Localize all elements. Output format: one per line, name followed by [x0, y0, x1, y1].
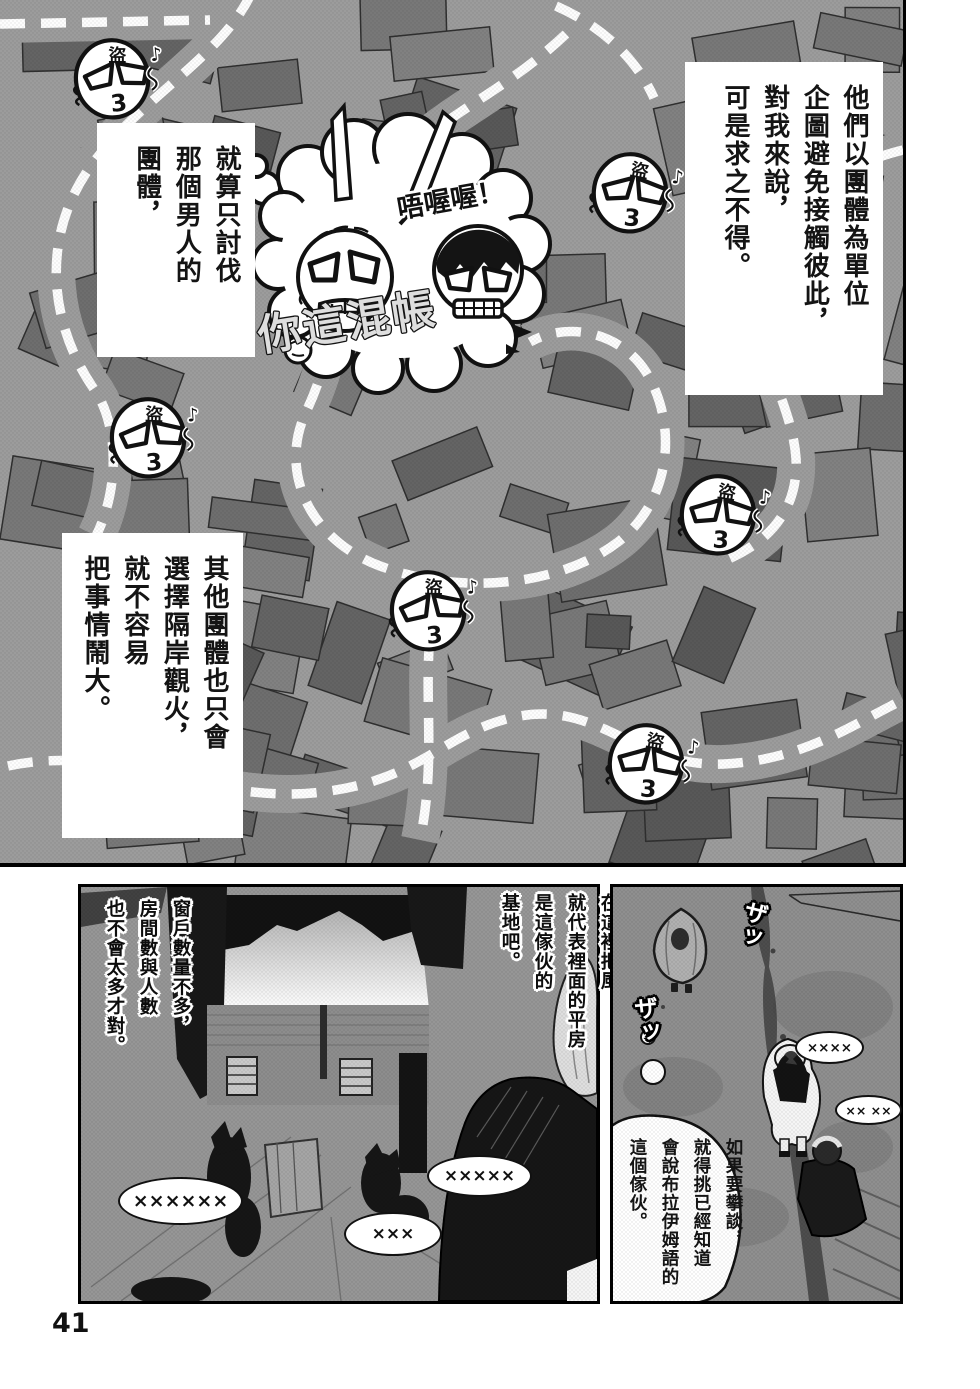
alley-caption-right: 在這裡把風， 就代表裡面的平房 是這傢伙的 基地吧。 — [489, 893, 621, 1049]
speech-bubble: ×× ×× — [835, 1095, 902, 1125]
bubble-text: ×××× — [807, 1040, 852, 1056]
caption-line: 對我來說， — [759, 84, 790, 373]
caption-line: 窗戶數量不多， — [167, 899, 193, 1055]
caption-line: 他們以團體為單位 — [838, 84, 869, 373]
caption-line: 就算只討伐 — [210, 145, 241, 335]
speech-bubble: ×××××× — [118, 1177, 243, 1225]
bubble-text: ×× ×× — [845, 1103, 891, 1118]
caption-line: 企圖避免接觸彼此， — [799, 84, 830, 373]
caption-box-left: 就算只討伐 那個男人的 團體， — [97, 123, 255, 357]
caption-line: 也不會太多才對。 — [101, 899, 127, 1055]
speech-bubble: ××××× — [427, 1155, 532, 1197]
manga-page: 盜 3 ♪ 盜 3 ♪ — [0, 0, 980, 1389]
caption-line: 如果要攀談， — [721, 1138, 746, 1286]
speech-bubble: ×××× — [795, 1031, 864, 1064]
caption-line: 其他團體也只會 — [198, 555, 229, 816]
page-number: 41 — [52, 1308, 90, 1339]
caption-line: 就不容易 — [119, 555, 150, 816]
caption-box-top-right: 他們以團體為單位 企圖避免接觸彼此， 對我來說， 可是求之不得。 — [685, 62, 883, 395]
caption-line: 就代表裡面的平房 — [562, 893, 588, 1049]
thought-text: 如果要攀談， 就得挑已經知道 會說布拉伊姆語的 這個傢伙。 — [618, 1138, 746, 1286]
caption-line: 房間數與人數 — [134, 899, 160, 1055]
whistle-mouth: 3 — [425, 620, 444, 649]
bubble-text: ××××× — [444, 1166, 515, 1186]
music-note-icon: ♪ — [759, 488, 772, 510]
chibi-darkhair — [434, 226, 522, 317]
whistle-mouth: 3 — [623, 203, 642, 232]
caption-line: 就得挑已經知道 — [689, 1138, 714, 1286]
caption-line: 是這傢伙的 — [529, 893, 555, 1049]
music-note-icon: ♪ — [149, 44, 163, 66]
whistle-mouth: 3 — [712, 525, 730, 554]
speech-bubble: ××× — [344, 1212, 442, 1256]
caption-line: 會說布拉伊姆語的 — [657, 1138, 682, 1286]
caption-line: 把事情鬧大。 — [79, 555, 110, 816]
footstep-sfx: ザッ — [626, 994, 666, 1045]
whistle-mouth: 3 — [145, 448, 163, 477]
whistle-mouth: 3 — [109, 88, 128, 118]
caption-line: 這個傢伙。 — [625, 1138, 650, 1286]
music-note-icon: ♪ — [186, 405, 199, 427]
caption-box-bottom-left: 其他團體也只會 選擇隔岸觀火， 就不容易 把事情鬧大。 — [62, 533, 243, 838]
music-note-icon: ♪ — [466, 577, 480, 599]
caption-line: 基地吧。 — [496, 893, 522, 1049]
bubble-text: ×××××× — [133, 1190, 229, 1212]
caption-line: 那個男人的 — [171, 145, 202, 335]
caption-line: 選擇隔岸觀火， — [159, 555, 190, 816]
alley-caption-left: 窗戶數量不多， 房間數與人數 也不會太多才對。 — [94, 899, 193, 1055]
bubble-text: ××× — [372, 1224, 415, 1244]
music-note-icon: ♪ — [687, 737, 700, 759]
sfx-text: ザッ — [626, 994, 666, 1045]
whistle-mouth: 3 — [639, 774, 657, 803]
music-note-icon: ♪ — [671, 167, 685, 189]
caption-line: 團體， — [131, 145, 162, 335]
caption-line: 可是求之不得。 — [719, 84, 750, 373]
